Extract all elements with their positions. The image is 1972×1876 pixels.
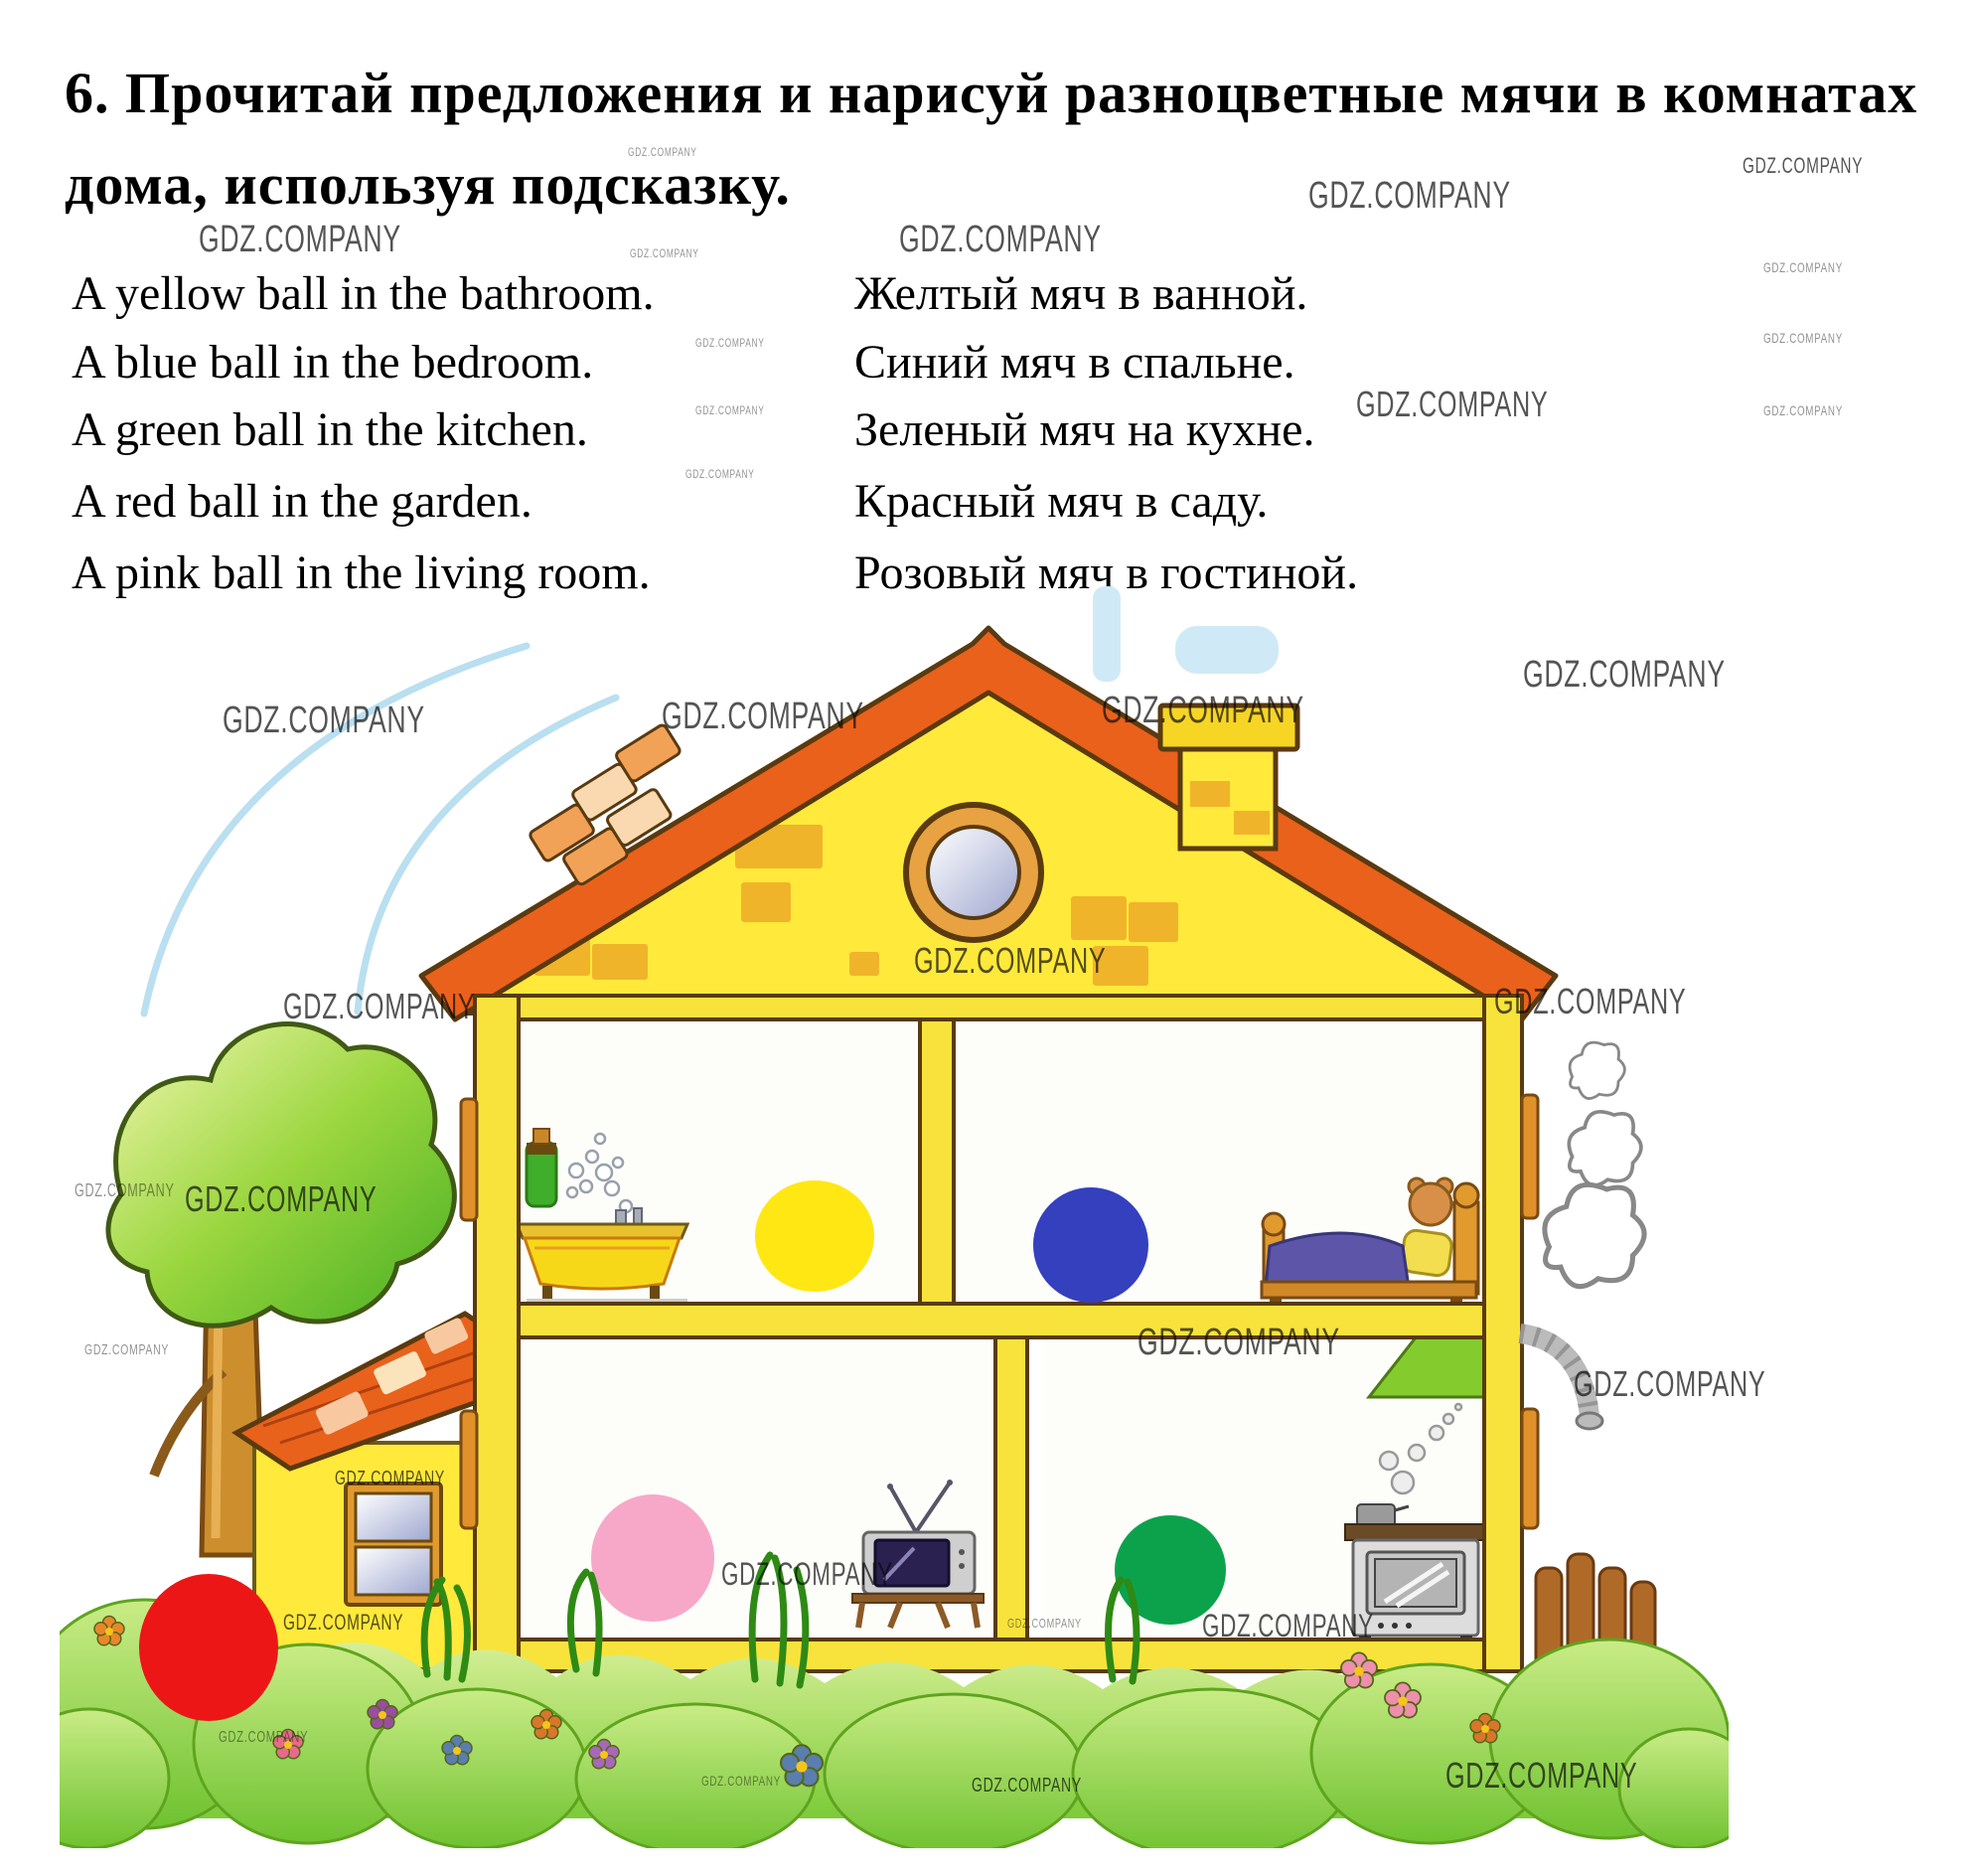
watermark: GDZ.COMPANY [914,940,1106,982]
exercise-heading-line1: 6. Прочитай предложения и нарисуй разноц… [65,60,1917,126]
watermark: GDZ.COMPANY [1445,1755,1637,1797]
sentence-english: A yellow ball in the bathroom. [72,266,655,321]
watermark: GDZ.COMPANY [628,145,697,159]
watermark: GDZ.COMPANY [695,403,765,417]
tree-foliage [108,1024,454,1327]
watermark: GDZ.COMPANY [1574,1363,1765,1405]
watermark: GDZ.COMPANY [75,1180,175,1201]
watermark: GDZ.COMPANY [1743,153,1863,179]
left-wall [475,996,519,1671]
watermark: GDZ.COMPANY [630,246,699,260]
sentence-russian: Синий мяч в спальне. [854,335,1295,390]
watermark: GDZ.COMPANY [283,986,475,1027]
mid-floor-beam [475,1304,1522,1337]
red-ball-garden [139,1574,278,1721]
watermark: GDZ.COMPANY [283,1610,403,1636]
exercise-heading-line2: дома, используя подсказку. [65,151,791,218]
watermark: GDZ.COMPANY [1763,402,1843,418]
smoke-puffs [1545,1042,1644,1287]
watermark: GDZ.COMPANY [695,336,765,350]
pink-ball-living-room [591,1494,714,1622]
teddy-bear [1409,1178,1452,1225]
watermark: GDZ.COMPANY [1494,981,1686,1022]
worksheet-page: 6. Прочитай предложения и нарисуй разноц… [0,0,1972,1876]
watermark: GDZ.COMPANY [685,467,755,481]
lower-divider [995,1337,1027,1640]
watermark: GDZ.COMPANY [199,219,401,261]
sentence-english: A green ball in the kitchen. [72,402,588,457]
watermark: GDZ.COMPANY [1763,330,1843,346]
sentence-russian: Красный мяч в саду. [854,474,1268,529]
watermark: GDZ.COMPANY [84,1341,169,1358]
sentence-russian: Зеленый мяч на кухне. [854,402,1314,457]
watermark: GDZ.COMPANY [335,1468,445,1490]
sky-patches [1093,586,1279,682]
blue-ball-bedroom [1033,1187,1148,1303]
watermark: GDZ.COMPANY [1102,690,1304,732]
watermark: GDZ.COMPANY [185,1178,377,1220]
watermark: GDZ.COMPANY [972,1775,1082,1798]
watermark: GDZ.COMPANY [899,219,1102,261]
right-wall [1484,996,1522,1671]
watermark: GDZ.COMPANY [1138,1322,1340,1364]
house [421,628,1556,1671]
upper-divider [920,1019,954,1304]
sentence-english: A red ball in the garden. [72,474,532,529]
watermark: GDZ.COMPANY [1007,1616,1082,1631]
watermark: GDZ.COMPANY [1523,654,1726,697]
watermark: GDZ.COMPANY [1356,384,1548,425]
watermark: GDZ.COMPANY [1308,175,1511,218]
watermark: GDZ.COMPANY [662,696,864,738]
watermark: GDZ.COMPANY [1202,1608,1374,1644]
yellow-ball-bathroom [755,1180,874,1292]
watermark: GDZ.COMPANY [219,1729,308,1747]
watermark: GDZ.COMPANY [721,1556,893,1593]
watermark: GDZ.COMPANY [1763,259,1843,275]
sentence-russian: Желтый мяч в ванной. [854,266,1307,321]
sentence-english: A blue ball in the bedroom. [72,335,593,390]
watermark: GDZ.COMPANY [701,1773,781,1789]
watermark: GDZ.COMPANY [223,700,425,742]
round-window [906,805,1041,940]
ceiling-beam [475,996,1522,1019]
